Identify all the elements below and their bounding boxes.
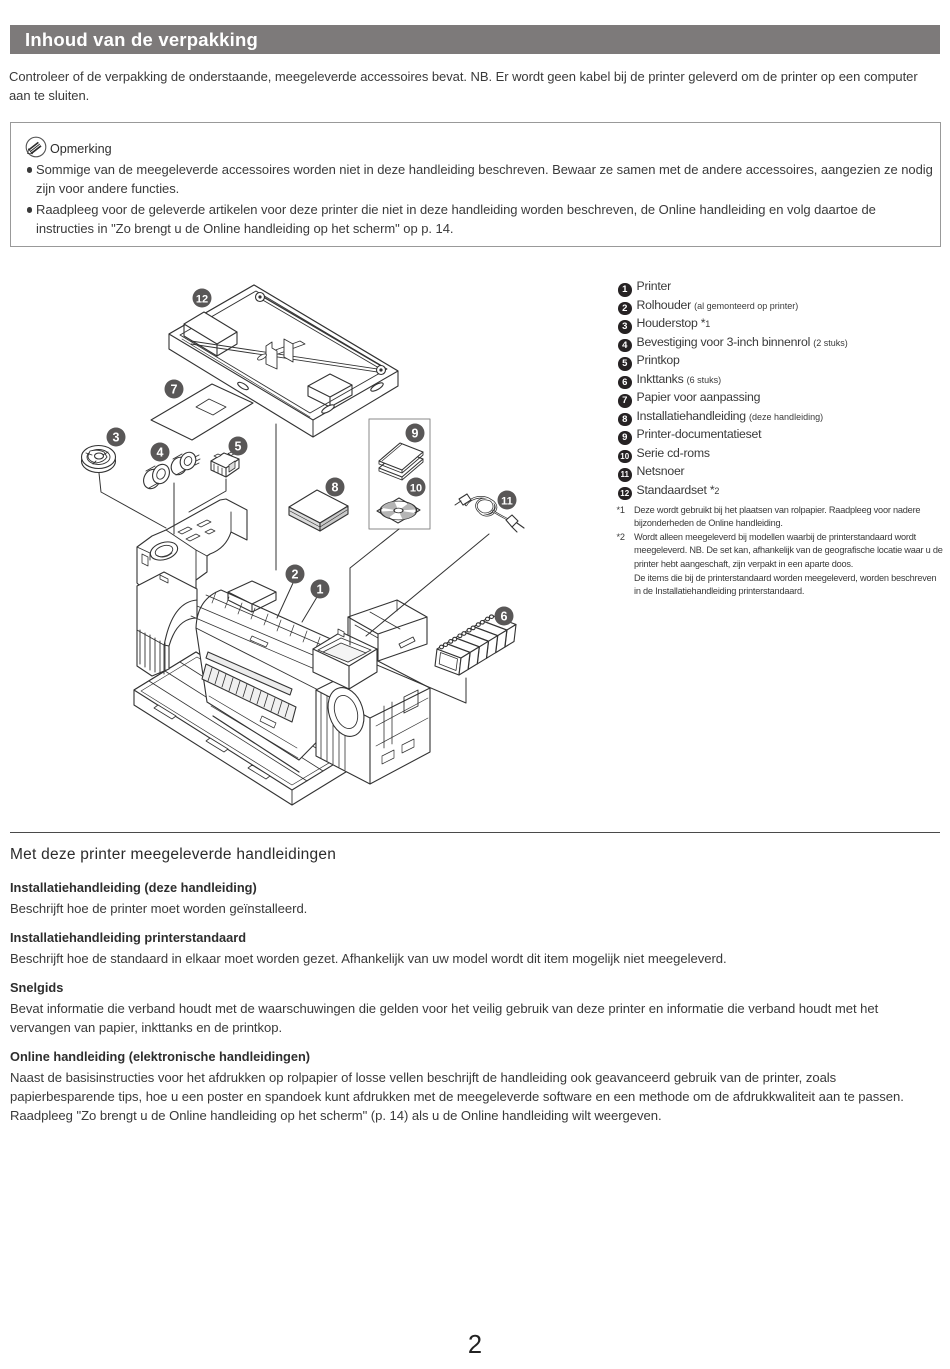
svg-text:3: 3 [113,431,120,445]
svg-text:1: 1 [317,583,324,597]
svg-text:10: 10 [410,483,422,495]
svg-text:7: 7 [171,383,178,397]
svg-text:8: 8 [332,481,339,495]
svg-text:9: 9 [412,427,419,441]
svg-text:5: 5 [235,440,242,454]
svg-text:4: 4 [157,446,164,460]
svg-text:6: 6 [501,610,508,624]
svg-text:11: 11 [501,496,513,508]
svg-text:2: 2 [292,568,299,582]
svg-text:12: 12 [196,294,208,306]
